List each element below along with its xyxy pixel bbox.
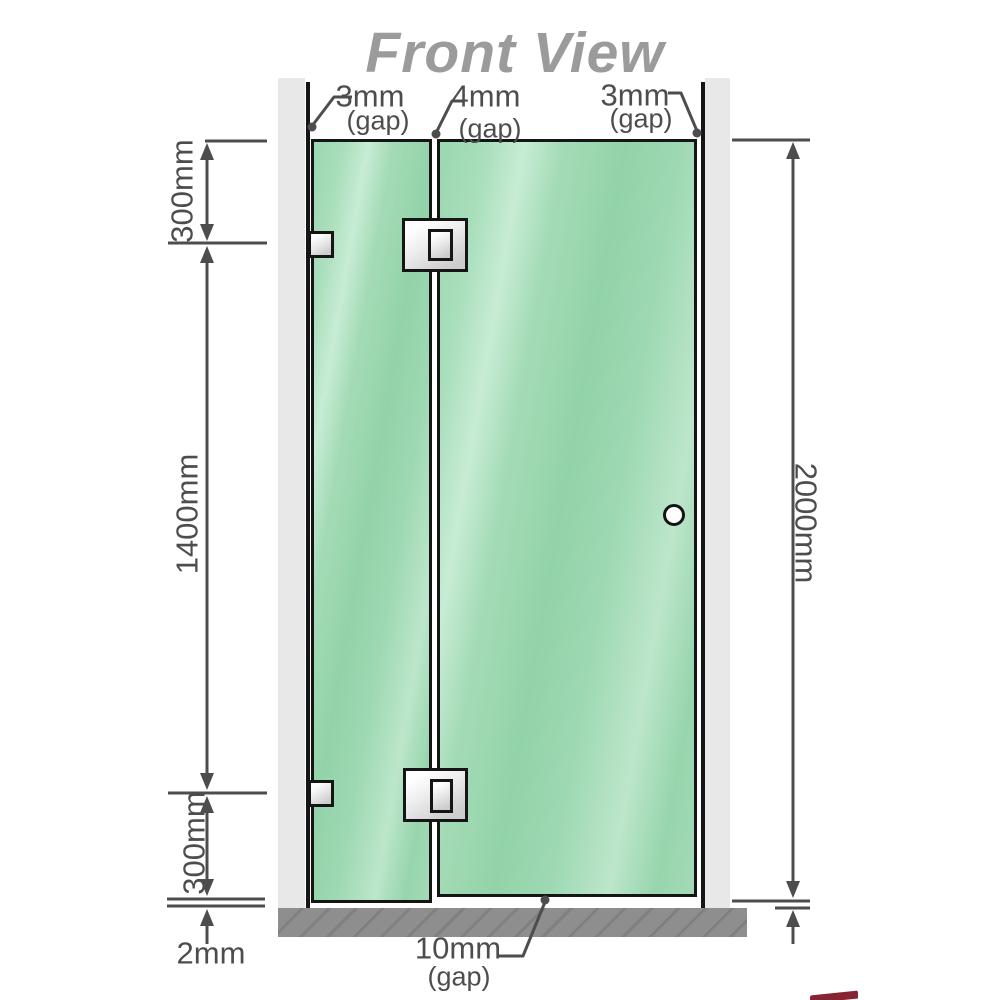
label-dim-left-top: 300mm (167, 139, 198, 242)
label-dim-right-full: 2000mm (791, 463, 822, 584)
dimension-annotations (0, 0, 1000, 1000)
diagram-canvas: Front View (0, 0, 1000, 1000)
label-gap-left-note: (gap) (346, 108, 409, 135)
label-floor-gap: 2mm (177, 938, 246, 969)
label-gap-bottom-note: (gap) (427, 964, 490, 991)
label-dim-left-middle: 1400mm (172, 454, 203, 575)
label-gap-middle-note: (gap) (458, 116, 521, 143)
label-dim-left-bottom: 300mm (179, 791, 210, 894)
label-gap-right-note: (gap) (609, 106, 672, 133)
label-gap-bottom-value: 10mm (415, 933, 501, 964)
label-gap-middle-value: 4mm (452, 81, 521, 112)
gap-leader-lines (308, 93, 702, 956)
